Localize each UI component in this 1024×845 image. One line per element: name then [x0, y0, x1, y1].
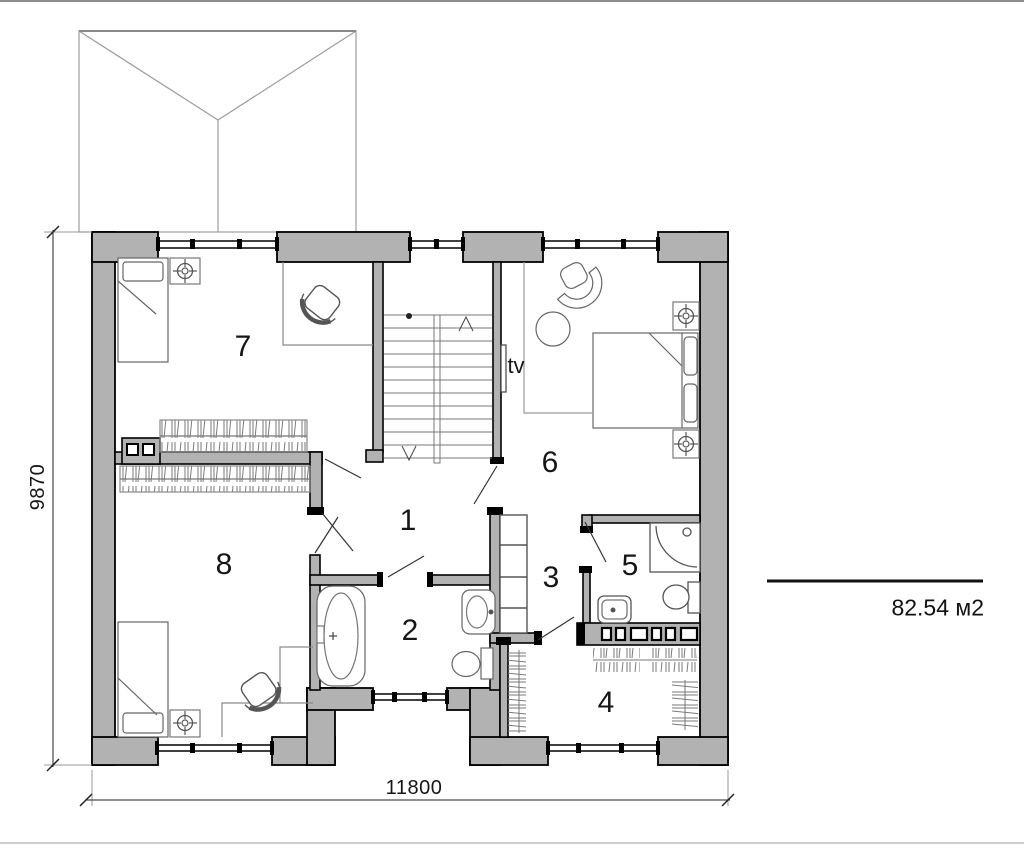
- side-table-room6: [536, 312, 570, 346]
- floor-plan: 7 8 1 2 3 4 5 6 tv 9870 11800 82.54 м2: [0, 0, 1024, 845]
- room5-fixtures: [598, 523, 700, 623]
- pillow2-room6: [684, 384, 697, 422]
- toilet-bathroom2: [452, 652, 480, 677]
- shower-tray: [650, 523, 700, 572]
- tv-label: tv: [507, 355, 524, 377]
- tv-unit: [501, 345, 506, 392]
- height-dimension-text: 9870: [28, 464, 48, 511]
- area-text: 82.54 м2: [891, 595, 984, 622]
- room-label-2: 2: [402, 616, 419, 646]
- room8-furniture: [118, 466, 313, 737]
- stair-start-dot: [406, 313, 412, 319]
- room3-cabinet: [500, 515, 527, 633]
- toilet-tank-room5: [688, 582, 700, 613]
- outer-walls: [92, 232, 728, 765]
- room-label-6: 6: [542, 448, 559, 478]
- room-label-7: 7: [235, 332, 252, 362]
- armchair-room6: [544, 251, 612, 318]
- floor-plan-drawing: [0, 0, 1024, 845]
- stair-up-arrow: [459, 317, 473, 331]
- toilet-room5: [663, 585, 689, 609]
- pillow-room7: [123, 262, 163, 281]
- office-chair-room8: [235, 667, 287, 717]
- room-label-8: 8: [216, 550, 233, 580]
- room-label-3: 3: [543, 563, 560, 593]
- room-label-4: 4: [598, 688, 615, 718]
- pillow1-room6: [684, 337, 697, 375]
- toilet-tank-bathroom2: [481, 648, 493, 679]
- pillow-room8: [123, 713, 163, 733]
- width-dimension-text: 11800: [386, 778, 443, 798]
- roof-outline: [79, 31, 356, 232]
- room-label-5: 5: [622, 551, 639, 581]
- room-label-1: 1: [400, 506, 417, 536]
- office-chair-room7: [294, 280, 346, 331]
- staircase: [384, 313, 492, 463]
